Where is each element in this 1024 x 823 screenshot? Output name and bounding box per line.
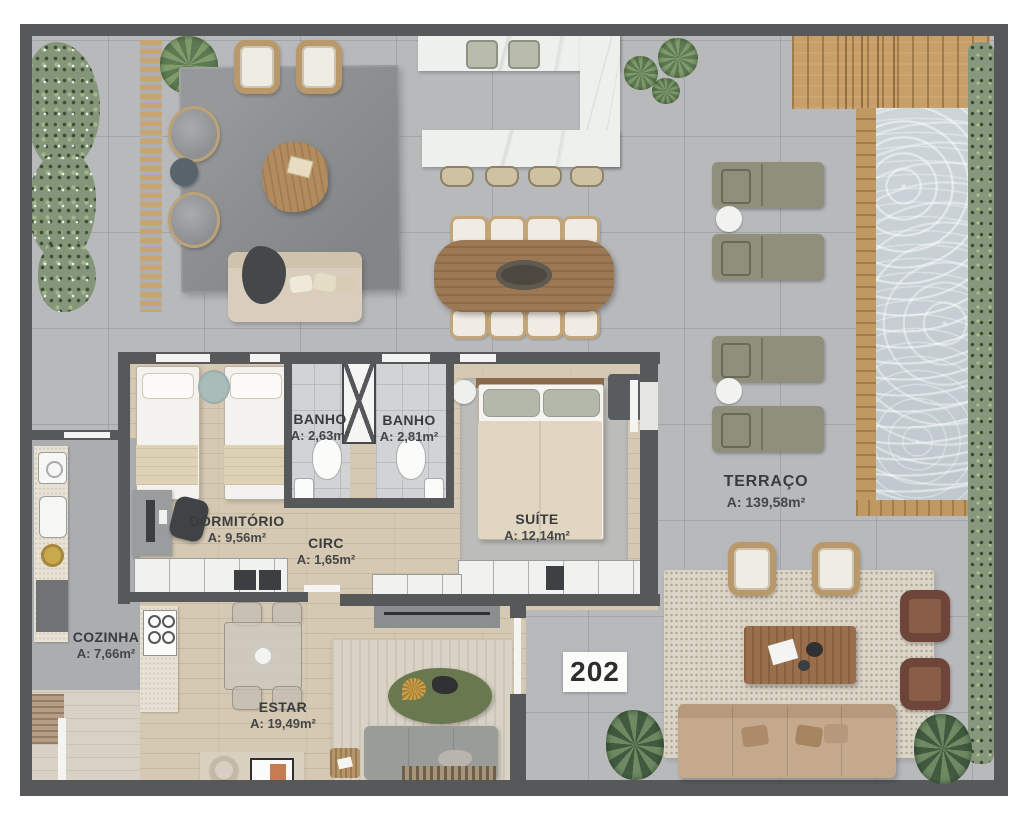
room-label-banho-2: BANHO A: 2,81m²	[380, 411, 439, 446]
floor-plan-canvas: DORMITÓRIO A: 9,56m² BANHO A: 2,63m² BAN…	[0, 0, 1024, 823]
wicker-chair	[296, 40, 342, 94]
coffee-table	[262, 142, 328, 212]
outer-wall-left	[20, 24, 32, 796]
room-label-terraco: TERRAÇO A: 139,58m²	[724, 472, 809, 511]
window-sill	[64, 432, 110, 438]
outer-wall-bottom	[20, 780, 1008, 796]
sofa-pillow	[335, 275, 357, 293]
vase	[798, 660, 810, 671]
deck-steps	[845, 33, 909, 109]
stove	[143, 610, 177, 656]
room-name: ESTAR	[250, 698, 316, 716]
room-label-cozinha: COZINHA A: 7,66m²	[73, 628, 140, 663]
estar-table	[224, 622, 302, 690]
room-name: SUÍTE	[504, 510, 570, 528]
room-label-circ: CIRC A: 1,65m²	[297, 534, 356, 569]
room-name: DORMITÓRIO	[190, 512, 285, 530]
window-sill	[156, 354, 210, 362]
round-rug	[198, 370, 230, 404]
wall	[118, 352, 130, 604]
wall	[640, 430, 658, 606]
outer-wall-top	[20, 24, 1008, 36]
wall	[340, 594, 660, 606]
wall	[286, 498, 454, 508]
sun-lounger	[712, 162, 824, 208]
sofa-pillow	[313, 272, 338, 293]
centerpiece-bowl	[496, 260, 552, 290]
desk	[132, 490, 172, 556]
twin-bed	[224, 366, 288, 500]
sofa-pillow	[741, 724, 770, 747]
kitchen-cabinet	[36, 580, 68, 632]
room-area: A: 9,56m²	[190, 530, 285, 547]
hedge	[968, 42, 994, 764]
sun-lounger	[712, 234, 824, 280]
door-leaf	[304, 585, 340, 592]
clothes-rail	[384, 612, 490, 615]
sofa-seam	[732, 706, 733, 776]
window-sill	[460, 354, 496, 362]
room-area: A: 1,65m²	[297, 552, 356, 569]
burner	[162, 615, 175, 628]
side-table	[170, 158, 198, 186]
wardrobe-item	[546, 566, 564, 590]
window-sill	[382, 354, 430, 362]
washer-drum	[46, 461, 63, 478]
wall	[510, 694, 526, 786]
sofa	[228, 252, 362, 322]
room-name: BANHO	[291, 410, 350, 428]
brown-wicker-chair	[900, 590, 950, 642]
room-area: A: 2,63m²	[291, 428, 350, 445]
room-name: BANHO	[380, 411, 439, 429]
room-area: A: 19,49m²	[250, 716, 316, 733]
dining-chair	[525, 308, 563, 339]
dresser-item	[259, 570, 281, 590]
room-area: A: 2,81m²	[380, 429, 439, 446]
bar-stool	[440, 166, 474, 187]
pool-edge	[856, 108, 876, 516]
burner	[148, 615, 161, 628]
burner	[162, 631, 175, 644]
bar-stool	[570, 166, 604, 187]
sofa-pillow	[289, 275, 313, 294]
entry-door	[58, 718, 66, 782]
book	[337, 757, 353, 770]
burner	[148, 631, 161, 644]
wicker-chair	[812, 542, 860, 596]
throw-blanket	[242, 246, 286, 304]
bed-blanket	[136, 445, 198, 485]
artwork	[270, 764, 286, 780]
dining-chair	[562, 308, 600, 339]
pouf-chair	[168, 192, 220, 248]
dresser-item	[234, 570, 256, 590]
potted-plant	[914, 714, 972, 784]
bush	[652, 78, 680, 104]
bar-stool	[528, 166, 562, 187]
room-label-banho-1: BANHO A: 2,63m²	[291, 410, 350, 445]
sun-lounger	[712, 406, 824, 452]
room-name: CIRC	[297, 534, 356, 552]
table-centerpiece	[253, 646, 273, 666]
door-threshold	[640, 382, 658, 430]
bed-pillow	[230, 373, 282, 399]
pouf-chair	[168, 106, 220, 162]
wall	[510, 596, 526, 618]
potted-plant	[606, 710, 664, 780]
twin-bed	[136, 366, 200, 500]
book	[768, 639, 799, 665]
vase	[806, 642, 823, 657]
pergola-slats	[140, 40, 162, 312]
wall	[118, 592, 308, 602]
sofa-pillow	[824, 724, 848, 743]
room-name: TERRAÇO	[724, 472, 809, 493]
wall	[446, 356, 454, 508]
sofa-pillow	[795, 724, 824, 748]
lounger-side-table	[716, 206, 742, 232]
door-leaf	[630, 380, 638, 432]
fan-decor	[402, 678, 426, 700]
keyboard	[159, 510, 167, 524]
table-decor	[432, 676, 458, 694]
pool	[876, 108, 968, 500]
oval-coffee-table	[388, 668, 492, 724]
bush	[658, 38, 698, 78]
wall	[640, 352, 658, 382]
counter-sink	[508, 40, 540, 69]
bedside-table	[452, 380, 476, 404]
bed-blanket	[224, 445, 286, 485]
room-label-estar: ESTAR A: 19,49m²	[250, 698, 316, 733]
bed-pillow	[142, 373, 194, 399]
sliding-door	[514, 618, 521, 694]
bed-pillow	[483, 389, 540, 417]
monitor	[146, 500, 155, 542]
kitchen-sink	[39, 496, 67, 538]
wicker-chair	[234, 40, 280, 94]
dining-chair	[488, 308, 526, 339]
outdoor-counter-bottom	[422, 130, 620, 167]
room-area: A: 139,58m²	[724, 493, 809, 511]
sun-lounger	[712, 336, 824, 382]
bed-pillow	[543, 389, 600, 417]
unit-number-badge: 202	[563, 652, 627, 692]
rattan-side-table	[330, 748, 360, 778]
terrace-sofa	[678, 704, 896, 778]
lounger-side-table	[716, 378, 742, 404]
bar-stool	[485, 166, 519, 187]
room-area: A: 7,66m²	[73, 646, 140, 663]
room-label-dormitorio: DORMITÓRIO A: 9,56m²	[190, 512, 285, 547]
counter-sink	[466, 40, 498, 69]
room-area: A: 12,14m²	[504, 528, 570, 545]
window-sill	[250, 354, 280, 362]
wicker-chair	[728, 542, 776, 596]
terrace-coffee-table	[744, 626, 856, 684]
room-label-suite: SUÍTE A: 12,14m²	[504, 510, 570, 545]
sofa-seam	[787, 706, 788, 776]
fruit-bowl	[41, 544, 64, 567]
dining-chair	[450, 308, 488, 339]
washing-machine	[38, 452, 67, 484]
brown-wicker-chair	[900, 658, 950, 710]
room-name: COZINHA	[73, 628, 140, 646]
outer-wall-right	[994, 24, 1008, 796]
